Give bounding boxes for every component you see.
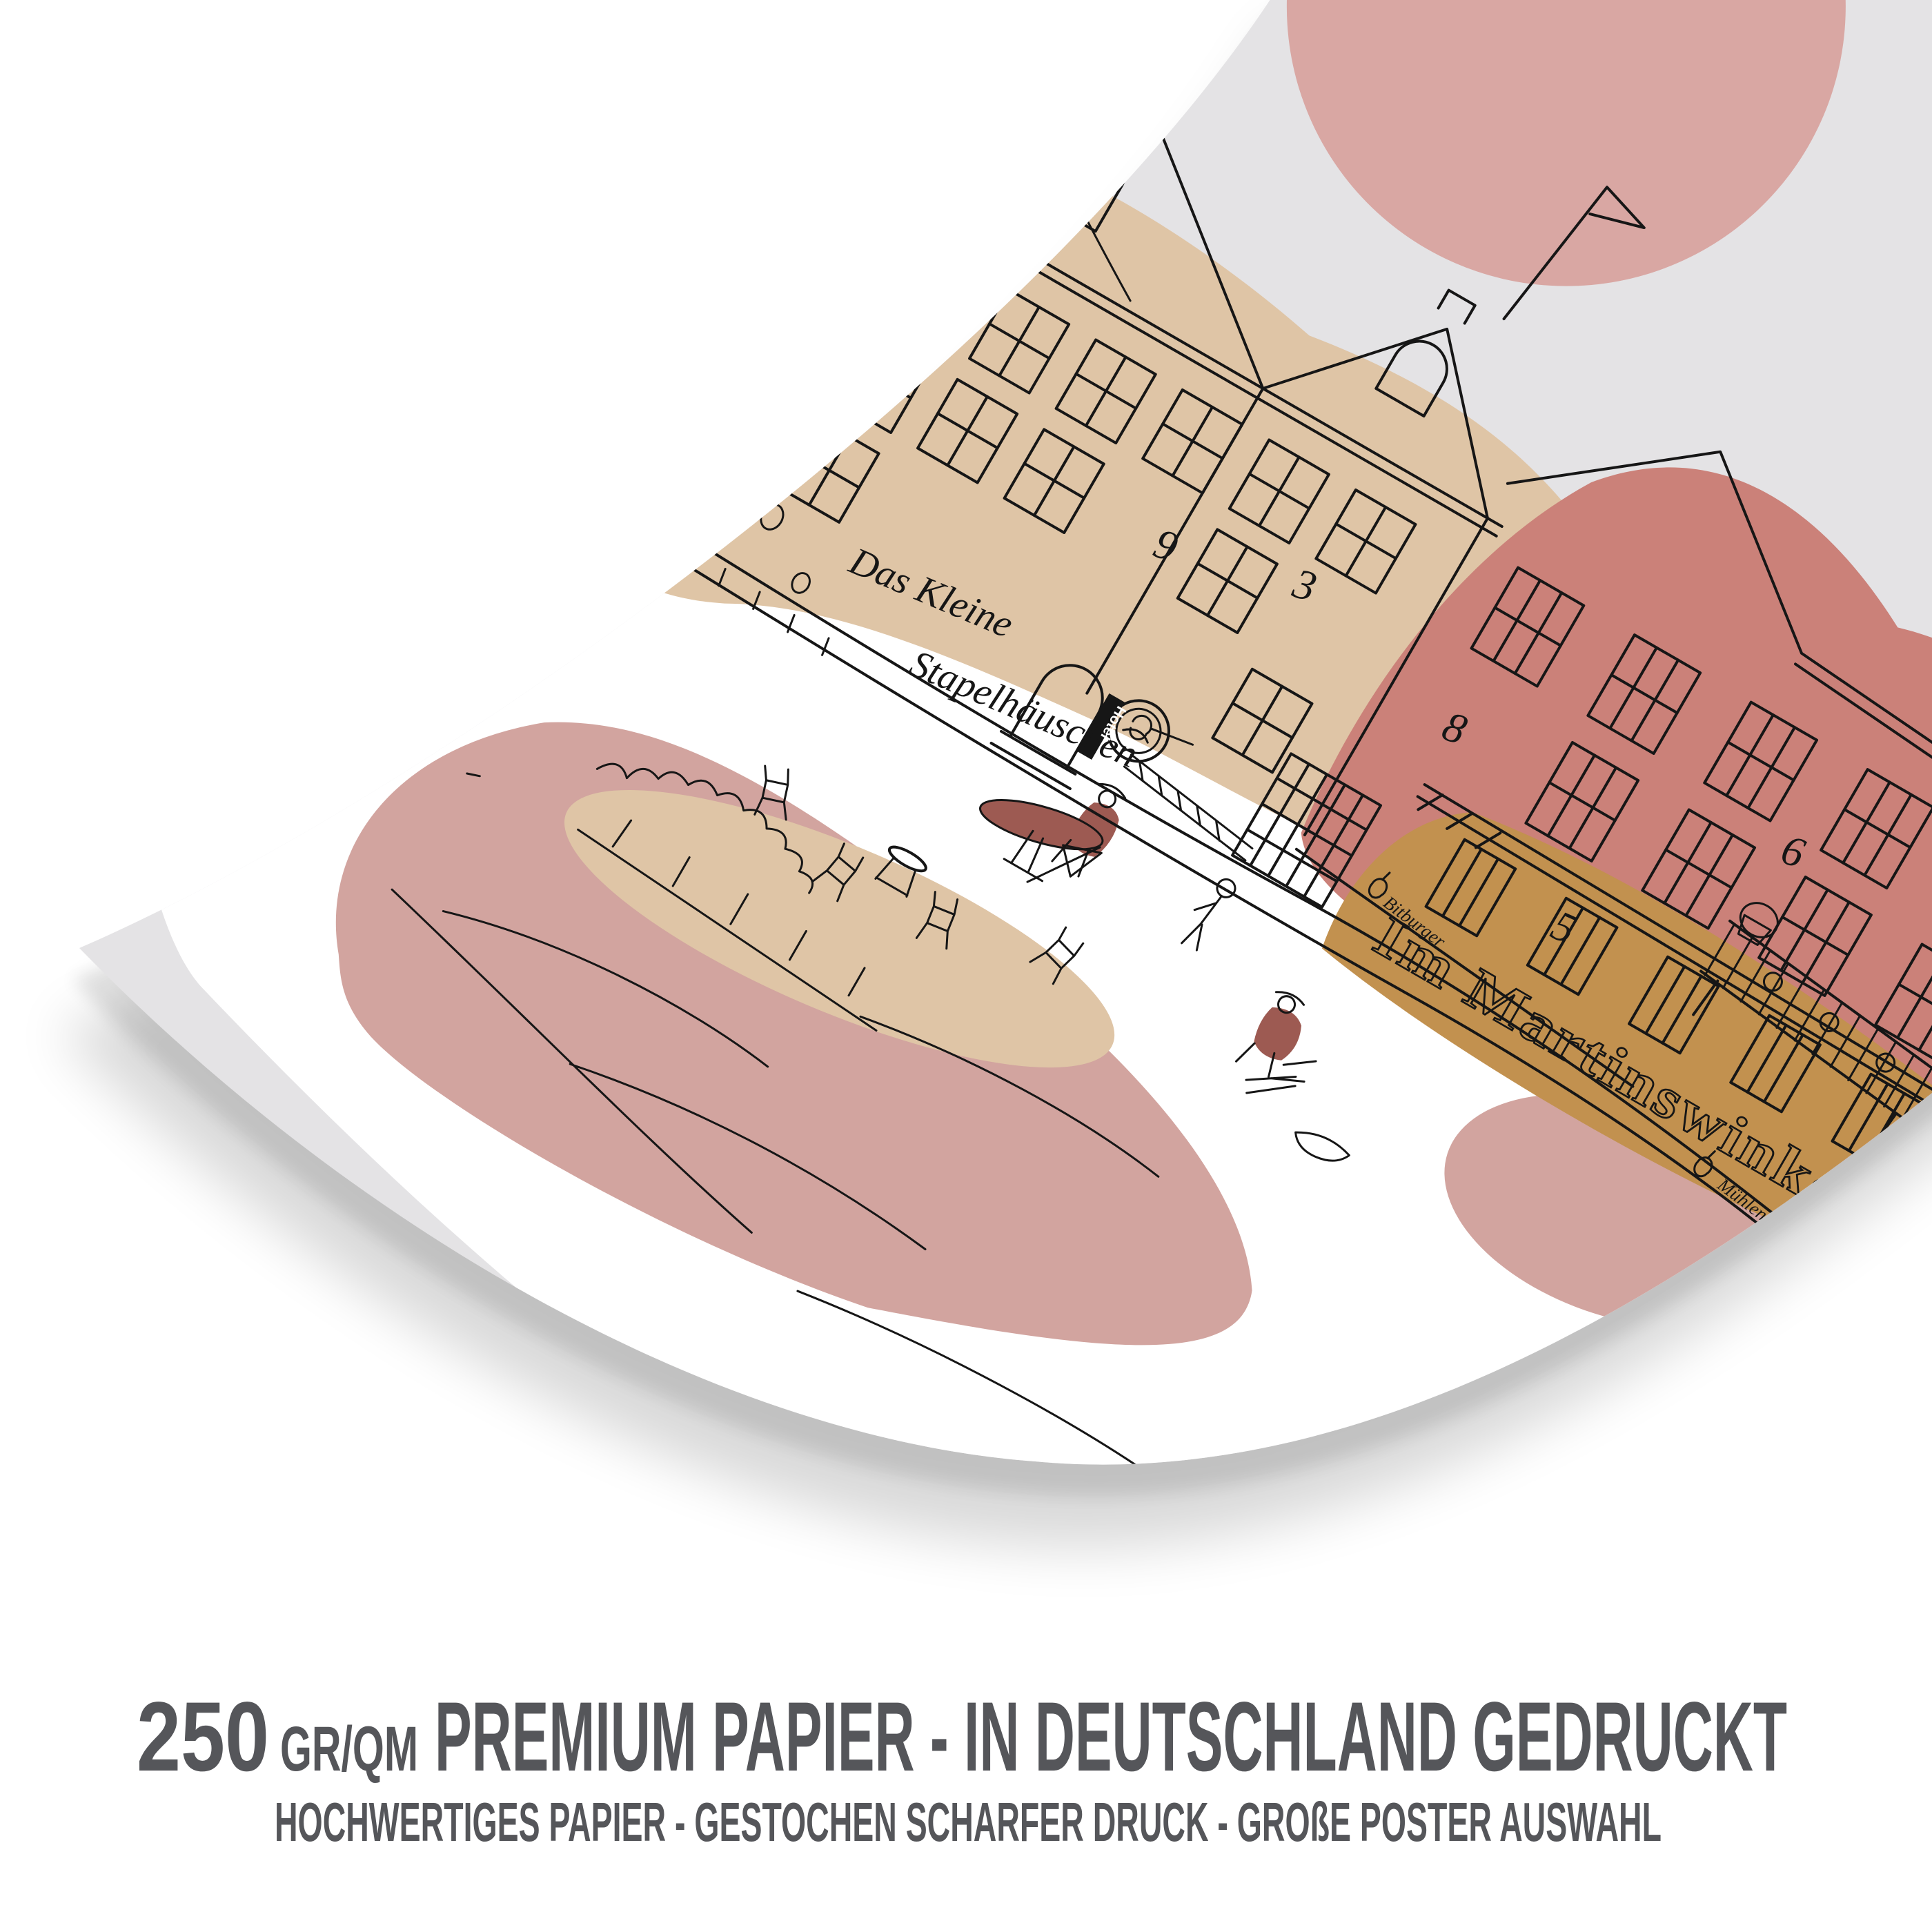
- mockup-canvas: Das Kleine Stapelhäuschen Im Martinswink…: [0, 0, 1932, 1932]
- banner-weight-unit: GR/QM: [280, 1714, 418, 1784]
- flag-icon: [800, 117, 856, 172]
- banner-subheadline: HOCHWERTIGES PAPIER - GESTOCHEN SCHARFER…: [275, 1791, 1662, 1853]
- banner: 250 GR/QM PREMIUM PAPIER - IN DEUTSCHLAN…: [137, 1682, 1787, 1853]
- banner-headline: PREMIUM PAPIER - IN DEUTSCHLAND GEDRUCKT: [435, 1682, 1787, 1792]
- banner-weight-value: 250: [137, 1682, 269, 1792]
- product-mockup: Das Kleine Stapelhäuschen Im Martinswink…: [0, 0, 1932, 1932]
